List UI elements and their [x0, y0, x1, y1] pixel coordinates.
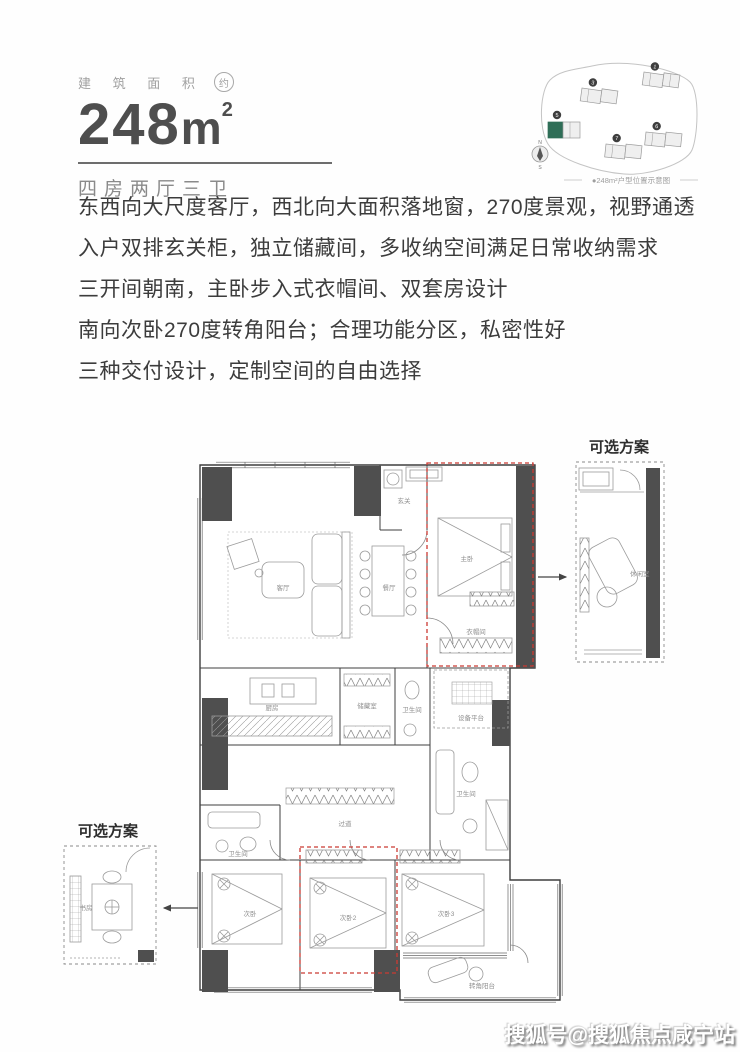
label-bed3: 次卧3	[438, 909, 455, 918]
label-living: 客厅	[277, 583, 291, 592]
svg-text:5: 5	[555, 113, 558, 119]
label-bath-master: 卫生间	[456, 789, 476, 798]
desc-line-4: 南向次卧270度转角阳台；合理功能分区，私密性好	[78, 319, 698, 343]
desc-line-5: 三种交付设计，定制空间的自由选择	[78, 360, 698, 384]
desc-line-3: 三开间朝南，主卧步入式衣帽间、双套房设计	[78, 278, 698, 302]
label-bath-left: 卫生间	[228, 849, 248, 858]
option-right-box: 可选方案 休闲室	[576, 438, 664, 662]
label-kitchen: 厨房	[266, 703, 279, 712]
area-label-row: 建 筑 面 积 约	[78, 72, 332, 92]
description: 东西向大尺度客厅，西北向大面积落地窗，270度景观，视野通透 入户双排玄关柜，独…	[78, 196, 698, 401]
siteplan-svg: 1 3 5 7	[526, 56, 716, 188]
label-bath-center: 卫生间	[402, 705, 422, 714]
corridor-closet	[286, 788, 394, 804]
option-right-room-label: 休闲室	[630, 569, 650, 578]
label-storage: 储藏室	[357, 701, 377, 710]
floorplan-svg: 可选方案 休闲室 可选方案	[0, 430, 740, 1052]
area-number: 248	[78, 92, 181, 157]
label-corridor: 过道	[339, 819, 353, 828]
label-entry: 玄关	[398, 496, 412, 505]
building-1: 1	[642, 61, 681, 90]
label-equipment: 设备平台	[458, 713, 484, 722]
svg-text:N: N	[538, 140, 542, 146]
watermark: 搜狐号@搜狐焦点咸宁站	[505, 1019, 735, 1049]
label-bed1: 次卧	[244, 909, 258, 918]
label-dining: 餐厅	[383, 583, 397, 592]
label-master: 主卧	[461, 554, 475, 563]
option-left-box: 可选方案 书房	[64, 822, 156, 964]
area-label: 建 筑 面 积	[78, 73, 204, 92]
label-balcony: 转角阳台	[469, 981, 495, 990]
option-left-room-label: 书房	[80, 903, 93, 912]
area-superscript: 2	[222, 99, 233, 121]
svg-text:6: 6	[655, 124, 659, 130]
option-left-title: 可选方案	[78, 822, 139, 840]
label-closet: 衣帽间	[466, 627, 486, 636]
compass-icon: N S	[532, 140, 548, 171]
approx-badge: 约	[214, 72, 234, 92]
desc-line-2: 入户双排玄关柜，独立储藏间，多收纳空间满足日常收纳需求	[78, 237, 698, 261]
label-bed2: 次卧2	[340, 913, 357, 922]
divider-line	[78, 162, 332, 164]
desc-line-1: 东西向大尺度客厅，西北向大面积落地窗，270度景观，视野通透	[78, 196, 698, 220]
area-unit: m	[181, 102, 222, 154]
area-block: 建 筑 面 积 约 248m2 四房两厅三卫	[78, 72, 332, 201]
svg-text:7: 7	[615, 136, 619, 142]
area-value: 248m2	[78, 96, 332, 154]
svg-text:S: S	[538, 165, 542, 171]
option-right-title: 可选方案	[589, 438, 650, 456]
page: 建 筑 面 积 约 248m2 四房两厅三卫 1 3	[0, 0, 740, 1052]
siteplan-caption: ●248m²户型位置示意图	[592, 175, 670, 185]
